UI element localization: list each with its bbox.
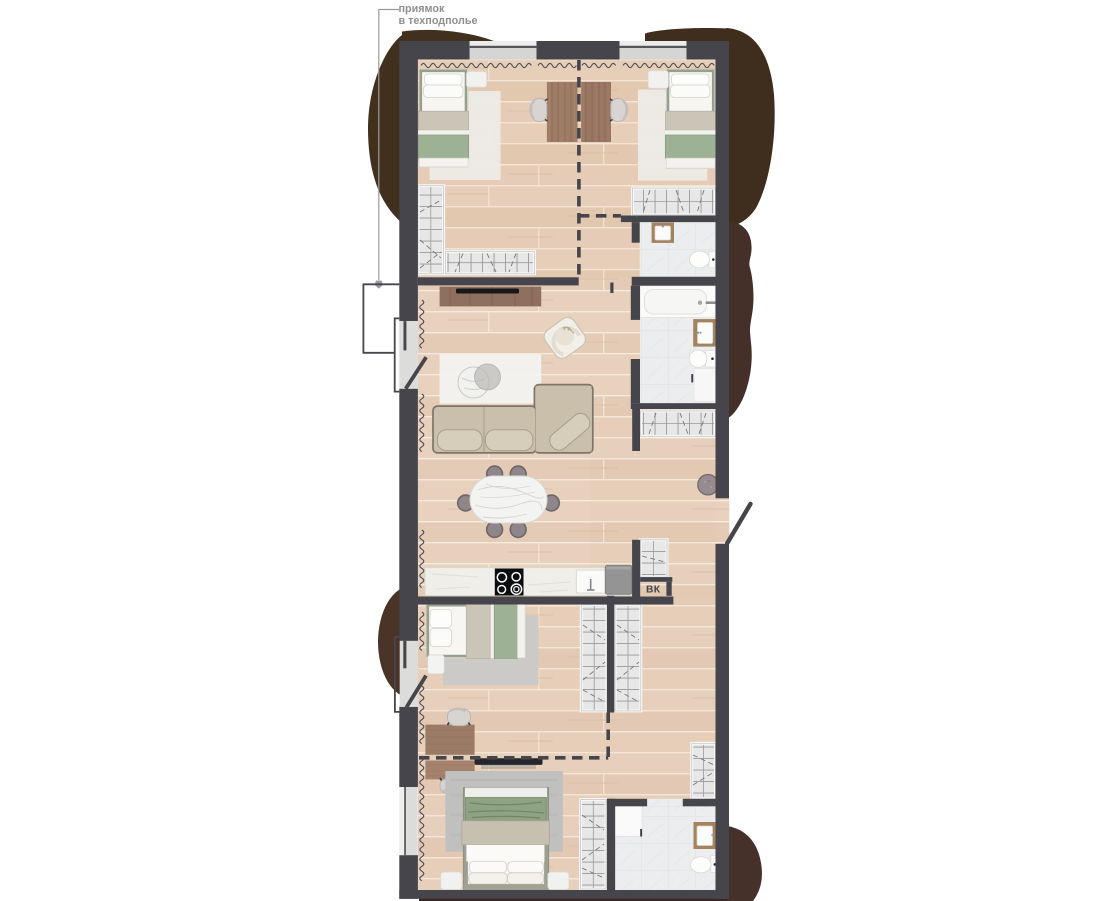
- svg-text:приямок: приямок: [399, 3, 445, 15]
- svg-text:в техподполье: в техподполье: [399, 15, 478, 27]
- svg-text:ВК: ВК: [646, 584, 661, 595]
